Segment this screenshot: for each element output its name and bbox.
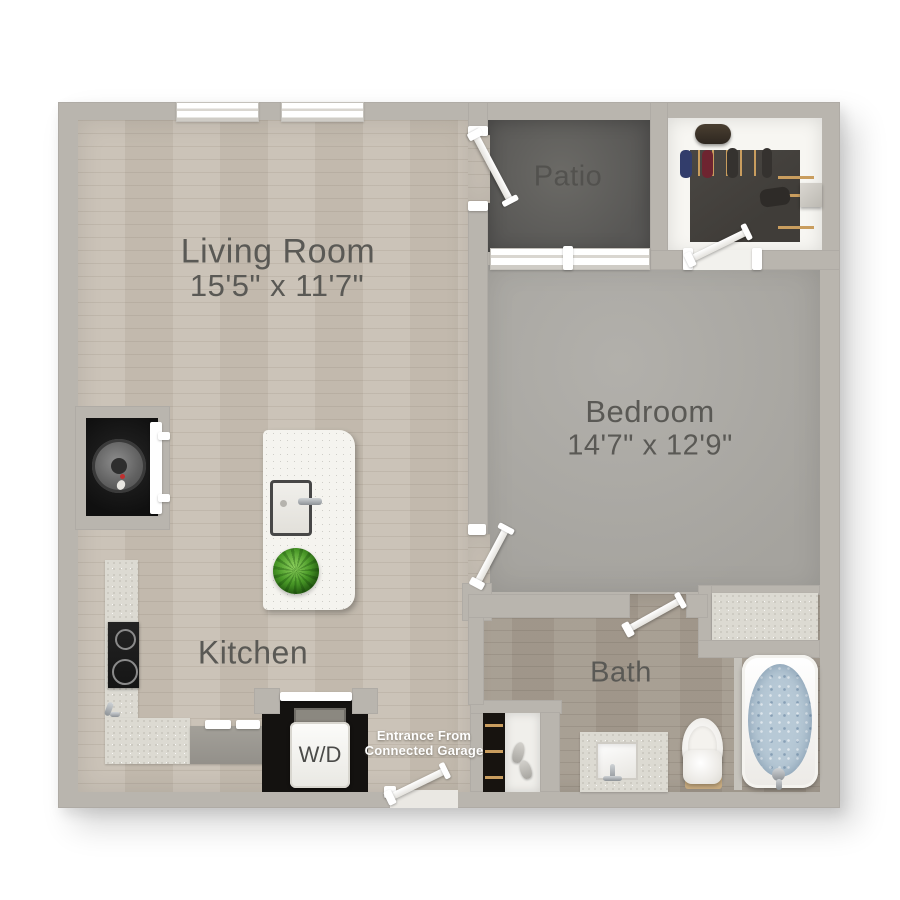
laundry-wall-post [352, 688, 378, 714]
bedroom-dimensions: 14'7" x 12'9" [567, 430, 733, 463]
entrance-note-line1: Entrance From [365, 728, 484, 743]
counter-tray [236, 720, 260, 729]
hanger-icon [754, 150, 756, 176]
counter-tray [205, 720, 231, 729]
patio-closet-wall [650, 102, 668, 252]
bedroom-door-jamb [468, 524, 486, 535]
living-window [176, 102, 259, 122]
entrance-note-line2: Connected Garage [365, 743, 484, 758]
closet-rod-icon [778, 226, 814, 229]
kitchen-faucet-icon [110, 712, 120, 717]
bath-label: Bath [590, 657, 652, 690]
tub-faucet-icon [776, 779, 782, 790]
closet-door-jamb [752, 248, 762, 270]
hanging-clothes-navy [680, 150, 692, 178]
patio-label: Patio [534, 161, 603, 194]
toilet-tank [683, 750, 722, 784]
vanity-sink [596, 742, 638, 780]
island-faucet-icon [298, 498, 322, 505]
window-mullion [563, 246, 573, 270]
island-sink-drain [280, 500, 287, 507]
valve-red-dot [120, 474, 125, 479]
hanger-icon [698, 150, 700, 176]
shelf-icon [485, 750, 503, 753]
hanging-clothes-dark [762, 148, 772, 178]
entrance-note: Entrance From Connected Garage [365, 728, 484, 758]
living-window [281, 102, 364, 122]
entry-closet-wall-right [540, 712, 560, 792]
bedroom-label: Bedroom [585, 394, 714, 430]
shelf-icon [485, 776, 503, 779]
closet-wall-bottom-left [650, 250, 683, 270]
duffel-bag [695, 124, 731, 144]
patio-door-jamb [468, 201, 488, 211]
living-room-label: Living Room [181, 233, 375, 272]
island-sink [270, 480, 312, 536]
kitchen-counter-bottom [105, 718, 190, 764]
storage-cube [800, 183, 822, 207]
closet-rod-icon [778, 176, 814, 179]
living-bedroom-wall [468, 203, 488, 534]
utility-door-hinge [158, 432, 170, 440]
closet-wall-bottom-right [752, 250, 840, 270]
kitchen-peninsula-counter [190, 726, 266, 764]
bathtub-water [748, 664, 812, 777]
vanity-faucet-icon [603, 776, 622, 781]
living-room-dimensions: 15'5" x 11'7" [190, 268, 364, 304]
washer-dryer-unit: W/D [290, 722, 350, 788]
hanging-clothes-dark [727, 148, 738, 178]
floor-plan-page: { "rooms": { "living": { "label": "Livin… [0, 0, 900, 900]
laundry-wall-post [254, 688, 280, 714]
tub-nook-wall-left [734, 658, 742, 790]
burner-icon [112, 659, 138, 685]
hanging-clothes-red [702, 150, 713, 178]
hanger-icon [740, 150, 742, 176]
shelf-icon [485, 724, 503, 727]
builtin-counter [712, 593, 818, 642]
kitchen-label: Kitchen [198, 635, 308, 672]
water-heater-hub [111, 458, 127, 474]
floor-plan: W/D Living [58, 102, 840, 808]
plant-icon [273, 548, 319, 594]
hall-wall [468, 617, 484, 705]
bedroom-bath-wall [468, 594, 630, 618]
bath-wall-stub [686, 594, 708, 618]
laundry-door-header [280, 692, 352, 701]
washer-dryer-label: W/D [299, 742, 342, 768]
utility-door-hinge [158, 494, 170, 502]
burner-icon [115, 629, 136, 650]
